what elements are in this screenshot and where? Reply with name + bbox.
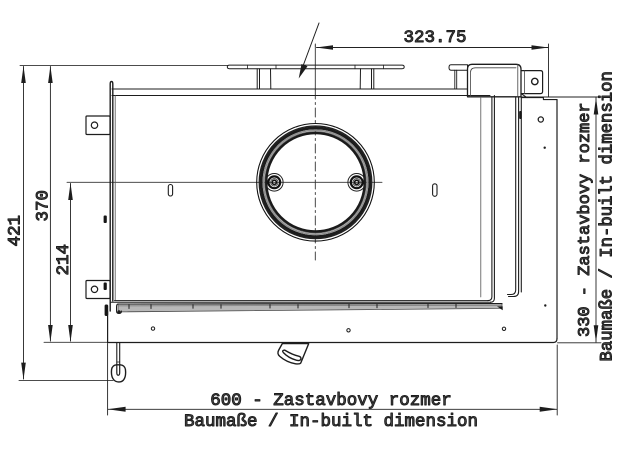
svg-text:370: 370 bbox=[34, 190, 54, 222]
svg-text:330 - Zastavbovy rozmer: 330 - Zastavbovy rozmer bbox=[576, 102, 595, 337]
svg-text:421: 421 bbox=[6, 215, 26, 247]
svg-text:600 - Zastavbovy rozmer: 600 - Zastavbovy rozmer bbox=[210, 391, 452, 411]
svg-text:214: 214 bbox=[54, 244, 74, 276]
svg-text:323.75: 323.75 bbox=[403, 28, 466, 48]
svg-text:Baumaße / In-built dimension: Baumaße / In-built dimension bbox=[599, 71, 618, 361]
svg-text:Baumaße / In-built dimension: Baumaße / In-built dimension bbox=[184, 412, 478, 432]
